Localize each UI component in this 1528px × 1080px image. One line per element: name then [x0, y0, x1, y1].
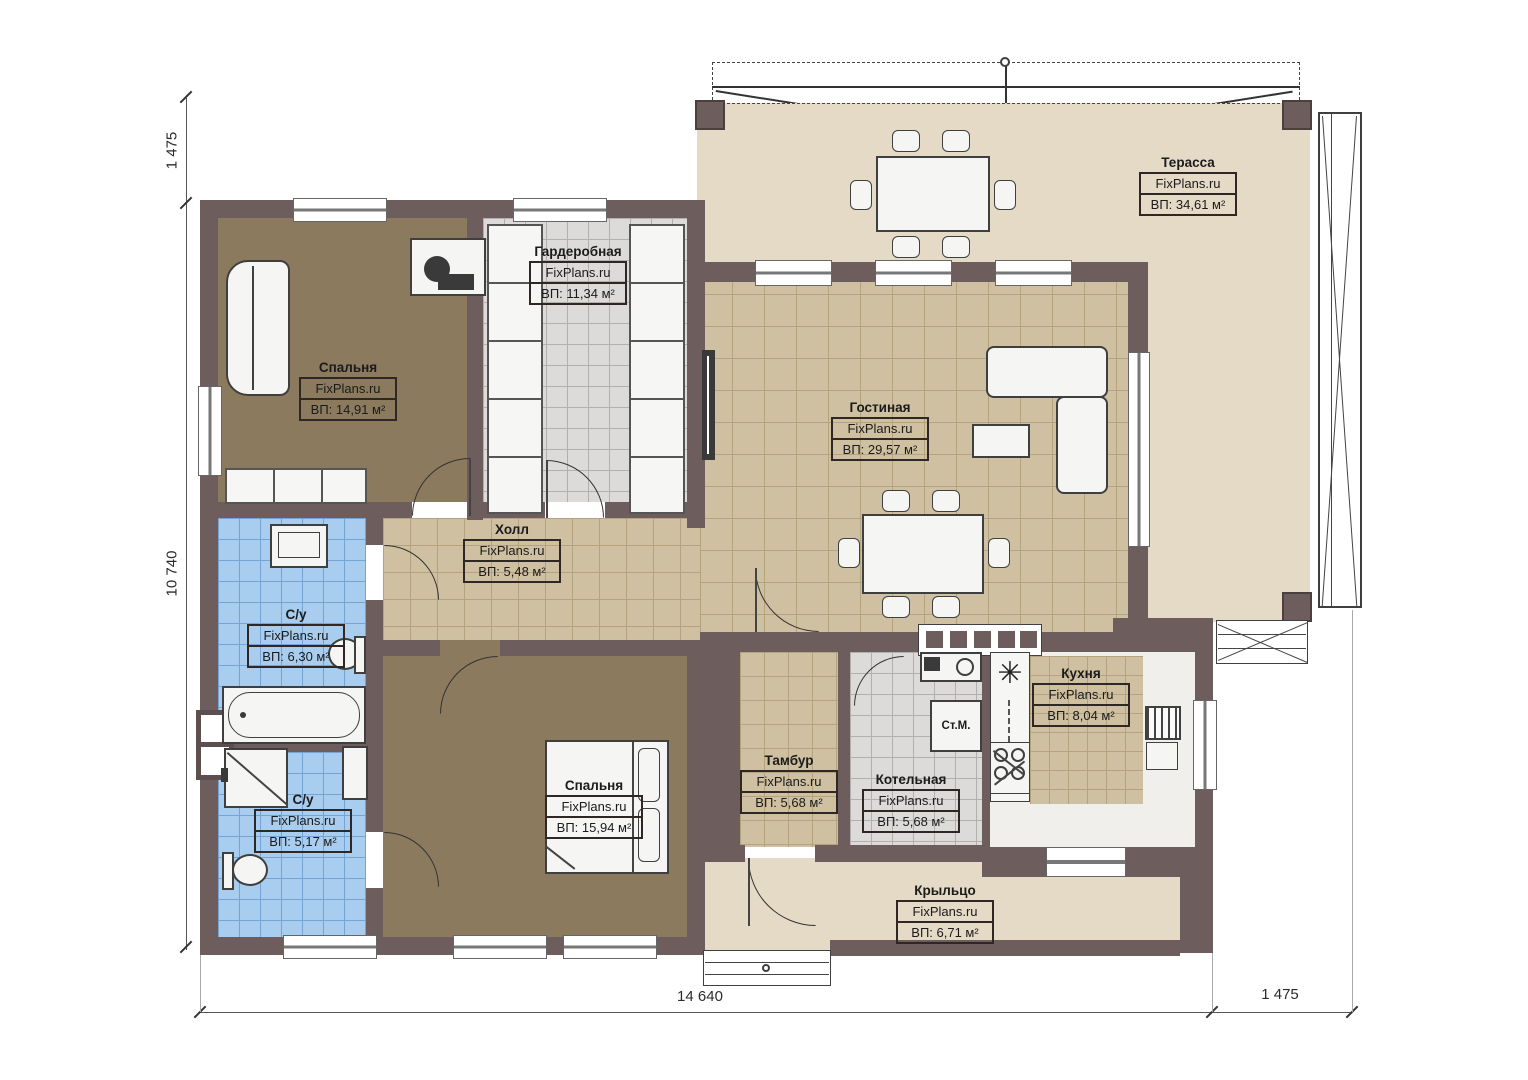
window-living-terrace: [1128, 352, 1150, 547]
door-leaf-bedroom1: [469, 458, 471, 516]
bedroom1-sofa: [226, 260, 290, 396]
window-wardrobe-top: [513, 198, 607, 222]
dim-extension: [1352, 610, 1353, 1012]
washing-machine: Ст.М.: [930, 700, 982, 752]
wall-under-bedroom1: [218, 502, 412, 518]
door-leaf-entrance: [748, 858, 750, 926]
bedroom1-closet-row: [225, 468, 367, 504]
room-label-wardrobe: Гардеробная FixPlans.ru ВП: 11,34 м²: [529, 244, 627, 305]
living-coffee-table: [972, 424, 1030, 458]
living-sofa-top: [986, 346, 1108, 398]
terrace-chair: [892, 130, 920, 152]
room-label-kitchen: Кухня FixPlans.ru ВП: 8,04 м²: [1032, 666, 1130, 727]
living-chair: [838, 538, 860, 568]
room-label-bath-bottom: С/у FixPlans.ru ВП: 5,17 м²: [254, 792, 352, 853]
bath-bottom-toilet-bowl: [232, 854, 268, 886]
room-area: ВП: 5,48 м²: [465, 562, 559, 581]
room-area: ВП: 34,61 м²: [1141, 195, 1235, 214]
bath-top-toilet-tank: [354, 636, 366, 674]
bedroom1-sofa-line: [252, 266, 254, 390]
room-name: Гостиная: [831, 400, 929, 415]
wall-porch-bottom: [830, 940, 1180, 956]
fridge: [1145, 706, 1181, 740]
dim-label-bottom: 14 640: [640, 988, 760, 1005]
wall-top: [200, 200, 705, 218]
terrace-chair: [892, 236, 920, 258]
room-area: ВП: 6,30 м²: [249, 647, 343, 666]
porch-steps-line: [705, 962, 829, 963]
terrace-table: [876, 156, 990, 232]
terrace-post: [1282, 592, 1312, 622]
brand-watermark: FixPlans.ru: [833, 419, 927, 440]
brand-watermark: FixPlans.ru: [547, 797, 641, 818]
wall-hall-bedroom2: [383, 640, 440, 656]
wall-bath-right: [366, 888, 383, 937]
room-tambur-floor: [740, 652, 838, 847]
interior-window-pane: [1020, 631, 1037, 648]
room-name: С/у: [247, 607, 345, 622]
wall-right-lower: [687, 640, 705, 955]
room-name: Спальня: [299, 360, 397, 375]
room-area: ВП: 5,68 м²: [864, 812, 958, 831]
living-table: [862, 514, 984, 594]
room-name: С/у: [254, 792, 352, 807]
room-label-porch: Крыльцо FixPlans.ru ВП: 6,71 м²: [896, 883, 994, 944]
room-terrace-floor: [1148, 262, 1310, 622]
living-chair: [988, 538, 1010, 568]
brand-watermark: FixPlans.ru: [1034, 685, 1128, 706]
interior-window-pane: [950, 631, 967, 648]
room-area: ВП: 15,94 м²: [547, 818, 641, 837]
shower-mixer: [221, 768, 228, 782]
door-leaf-tambur-top: [755, 568, 757, 632]
room-area: ВП: 6,71 м²: [898, 923, 992, 942]
room-name: Терасса: [1139, 155, 1237, 170]
wall-left: [200, 200, 218, 955]
terrace-steps-line: [1218, 634, 1306, 635]
dim-extension: [200, 955, 201, 1012]
brand-watermark: FixPlans.ru: [864, 791, 958, 812]
room-name: Котельная: [862, 772, 960, 787]
window-bedroom2-bottom: [453, 935, 547, 959]
brand-watermark: FixPlans.ru: [301, 379, 395, 400]
room-label-bath-top: С/у FixPlans.ru ВП: 6,30 м²: [247, 607, 345, 668]
room-name: Спальня: [545, 778, 643, 793]
interior-window-pane: [974, 631, 991, 648]
living-chair: [932, 596, 960, 618]
interior-window-pane: [926, 631, 943, 648]
interior-window-pane: [998, 631, 1015, 648]
wall-tambur-left: [705, 640, 740, 858]
terrace-steps-line: [1218, 648, 1306, 649]
tv-screen-line: [707, 356, 709, 454]
wall-under-tambur: [705, 845, 745, 862]
wall-porch-right: [1180, 847, 1213, 953]
window-kitchen-right: [1193, 700, 1217, 790]
room-area: ВП: 5,68 м²: [742, 793, 836, 812]
terrace-chair: [942, 236, 970, 258]
wall-kitchen-corner: [1113, 618, 1213, 652]
bath-top-sink-basin: [278, 532, 320, 558]
terrace-post: [1282, 100, 1312, 130]
wall-living-right: [1128, 262, 1148, 352]
room-label-bedroom1: Спальня FixPlans.ru ВП: 14,91 м²: [299, 360, 397, 421]
room-label-tambur: Тамбур FixPlans.ru ВП: 5,68 м²: [740, 753, 838, 814]
room-label-terrace: Терасса FixPlans.ru ВП: 34,61 м²: [1139, 155, 1237, 216]
dim-label-top-left: 1 475: [164, 111, 181, 191]
window-bedroom1-top: [293, 198, 387, 222]
boiler-sink: [956, 658, 974, 676]
bathtub-drain: [240, 712, 246, 718]
room-label-living: Гостиная FixPlans.ru ВП: 29,57 м²: [831, 400, 929, 461]
wall-under-boiler: [815, 845, 982, 862]
bedroom1-monitor: [438, 274, 474, 290]
room-label-bedroom2: Спальня FixPlans.ru ВП: 15,94 м²: [545, 778, 643, 839]
room-area: ВП: 5,17 м²: [256, 832, 350, 851]
brand-watermark: FixPlans.ru: [1141, 174, 1235, 195]
wall-boiler-kitchen: [982, 652, 990, 858]
terrace-chair: [850, 180, 872, 210]
window-bath-bottom: [283, 935, 377, 959]
room-name: Кухня: [1032, 666, 1130, 681]
terrace-chair: [942, 130, 970, 152]
brand-watermark: FixPlans.ru: [465, 541, 559, 562]
wall-tambur-boiler: [838, 652, 850, 858]
window-living-top: [995, 260, 1072, 286]
room-name: Холл: [463, 522, 561, 537]
dim-label-bottom-right: 1 475: [1230, 986, 1330, 1003]
brand-watermark: FixPlans.ru: [898, 902, 992, 923]
brand-watermark: FixPlans.ru: [742, 772, 836, 793]
window-bedroom1-left: [198, 386, 222, 476]
living-chair: [882, 490, 910, 512]
floor-plan: 1 475 10 740 14 640 1 475: [0, 0, 1528, 1080]
roof-truss-node: [1000, 57, 1010, 67]
kitchen-counter-divider: [1008, 700, 1010, 742]
terrace-post: [695, 100, 725, 130]
room-label-hall: Холл FixPlans.ru ВП: 5,48 м²: [463, 522, 561, 583]
terrace-chair: [994, 180, 1016, 210]
wall-bath-right: [366, 518, 383, 545]
door-leaf-wardrobe: [546, 460, 548, 518]
living-chair: [932, 490, 960, 512]
wardrobe-shelf-right: [629, 224, 685, 514]
room-area: ВП: 14,91 м²: [301, 400, 395, 419]
stove-symbol-icon: ✳: [992, 656, 1028, 692]
wall-bath-right: [366, 600, 383, 832]
living-sofa-side: [1056, 396, 1108, 494]
living-chair: [882, 596, 910, 618]
window-living-top: [875, 260, 952, 286]
boiler-soap-box: [924, 657, 940, 671]
room-name: Тамбур: [740, 753, 838, 768]
porch-steps-node: [762, 964, 770, 972]
room-area: ВП: 29,57 м²: [833, 440, 927, 459]
porch-steps-line: [705, 974, 829, 975]
wall-hall-bedroom2: [500, 640, 687, 656]
kitchen-appliance: [1146, 742, 1178, 770]
room-area: ВП: 8,04 м²: [1034, 706, 1128, 725]
brand-watermark: FixPlans.ru: [249, 626, 343, 647]
dim-label-left: 10 740: [164, 534, 181, 614]
room-area: ВП: 11,34 м²: [531, 284, 625, 303]
window-bedroom2-bottom: [563, 935, 657, 959]
room-label-boiler: Котельная FixPlans.ru ВП: 5,68 м²: [862, 772, 960, 833]
bathtub-inner: [228, 692, 360, 738]
window-living-top: [755, 260, 832, 286]
dim-line-bottom: [200, 1012, 1352, 1013]
room-name: Крыльцо: [896, 883, 994, 898]
washing-machine-label: Ст.М.: [942, 720, 971, 732]
brand-watermark: FixPlans.ru: [256, 811, 350, 832]
brand-watermark: FixPlans.ru: [531, 263, 625, 284]
room-name: Гардеробная: [529, 244, 627, 259]
window-kitchen-bottom: [1046, 847, 1126, 877]
wind-screen-mullion: [1331, 114, 1332, 606]
dim-line-left: [186, 98, 187, 950]
